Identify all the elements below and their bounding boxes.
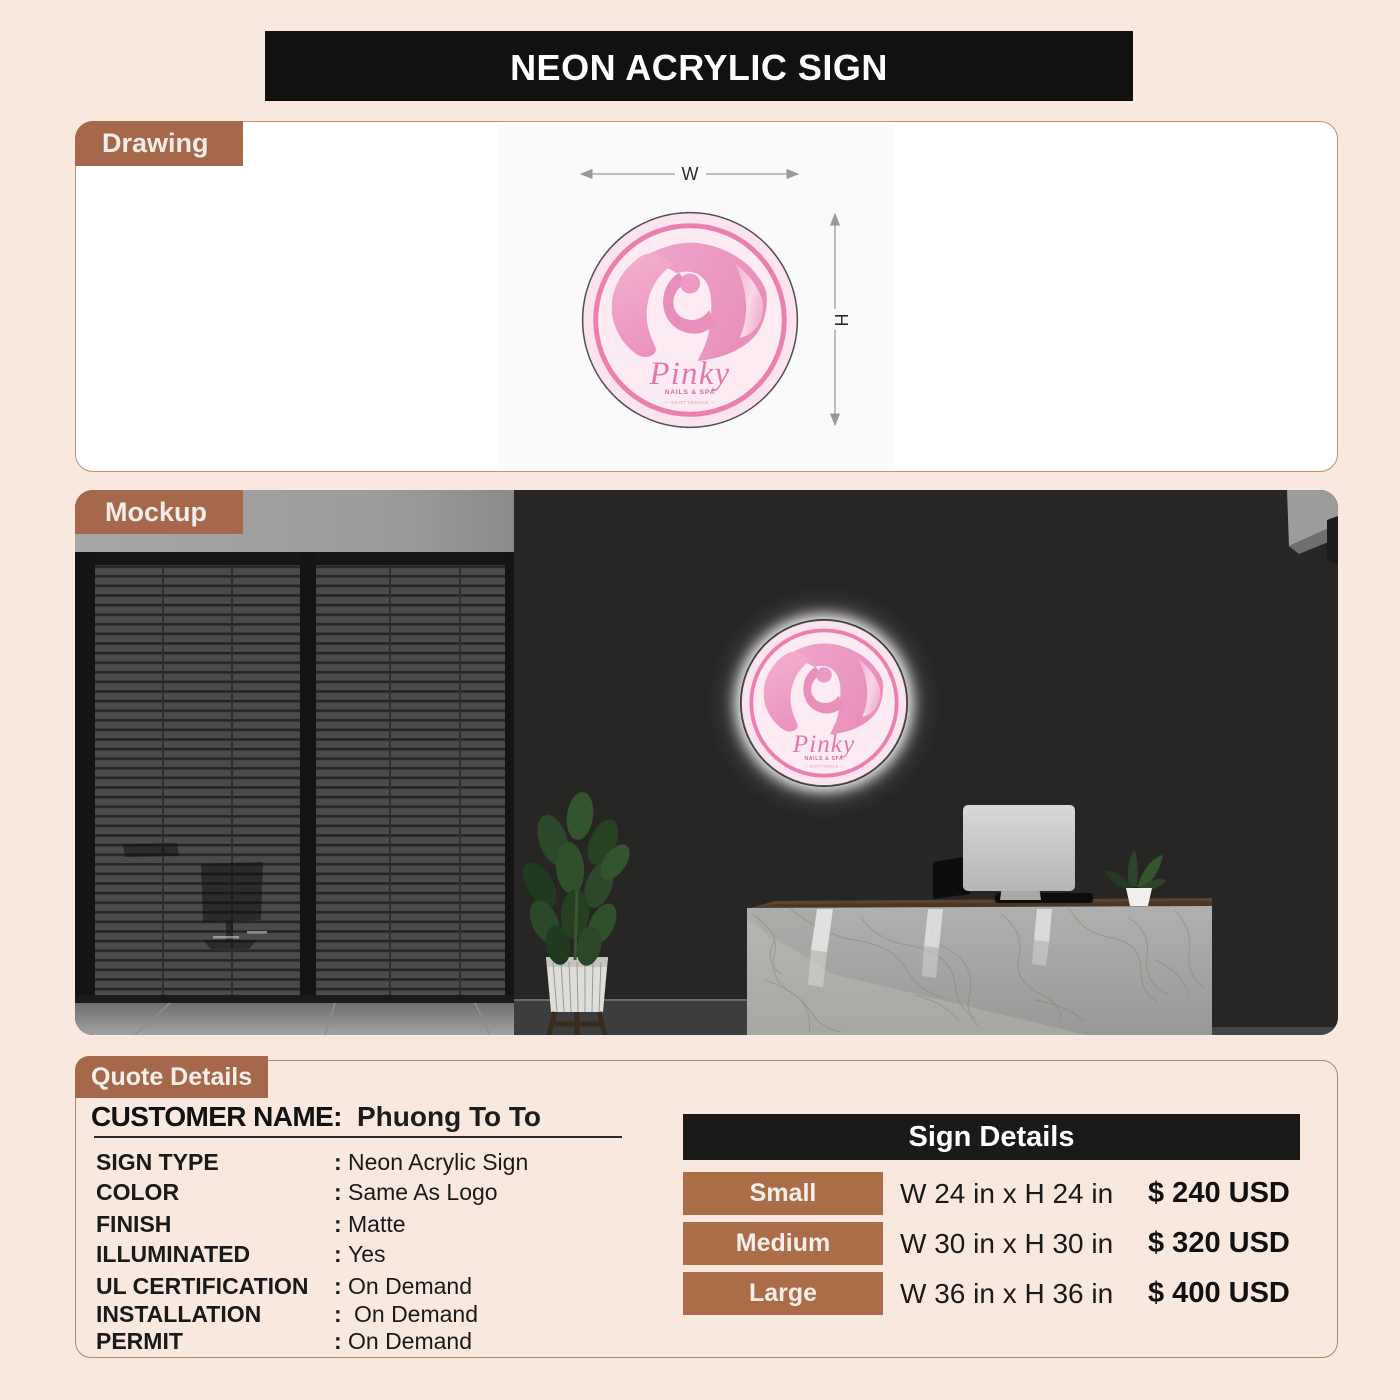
svg-text:W: W [682,164,699,184]
svg-text:H: H [831,314,851,327]
